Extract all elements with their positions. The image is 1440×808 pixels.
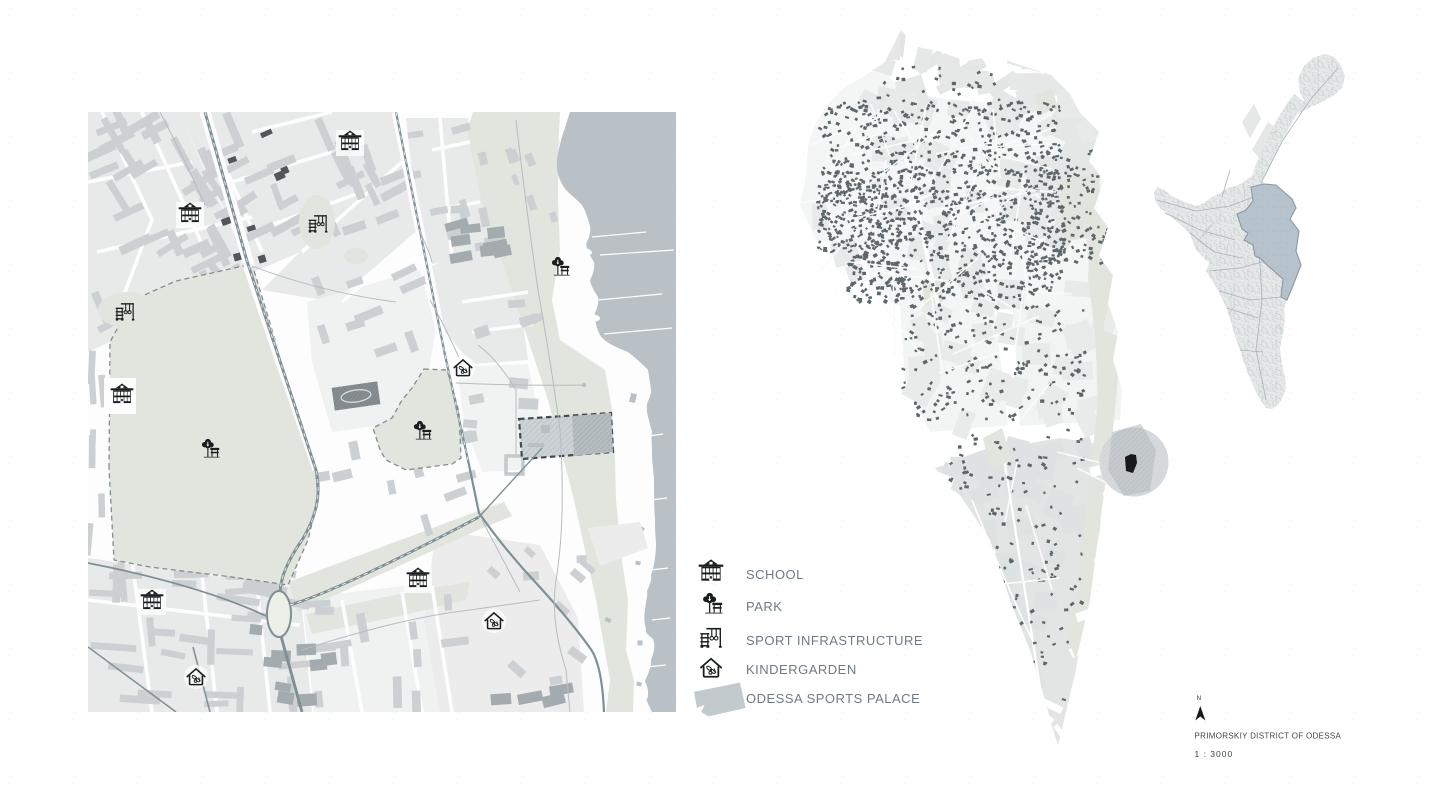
svg-text:KINDERGARDEN: KINDERGARDEN: [746, 662, 857, 677]
svg-text:N: N: [1197, 695, 1202, 702]
svg-text:1 : 3000: 1 : 3000: [1195, 749, 1234, 759]
svg-text:ODESSA SPORTS PALACE: ODESSA SPORTS PALACE: [746, 691, 920, 706]
svg-text:PRIMORSKIY DISTRICT OF ODESSA: PRIMORSKIY DISTRICT OF ODESSA: [1195, 732, 1342, 741]
svg-text:SPORT INFRASTRUCTURE: SPORT INFRASTRUCTURE: [746, 633, 923, 648]
svg-text:SCHOOL: SCHOOL: [746, 567, 804, 582]
svg-text:PARK: PARK: [746, 599, 782, 614]
